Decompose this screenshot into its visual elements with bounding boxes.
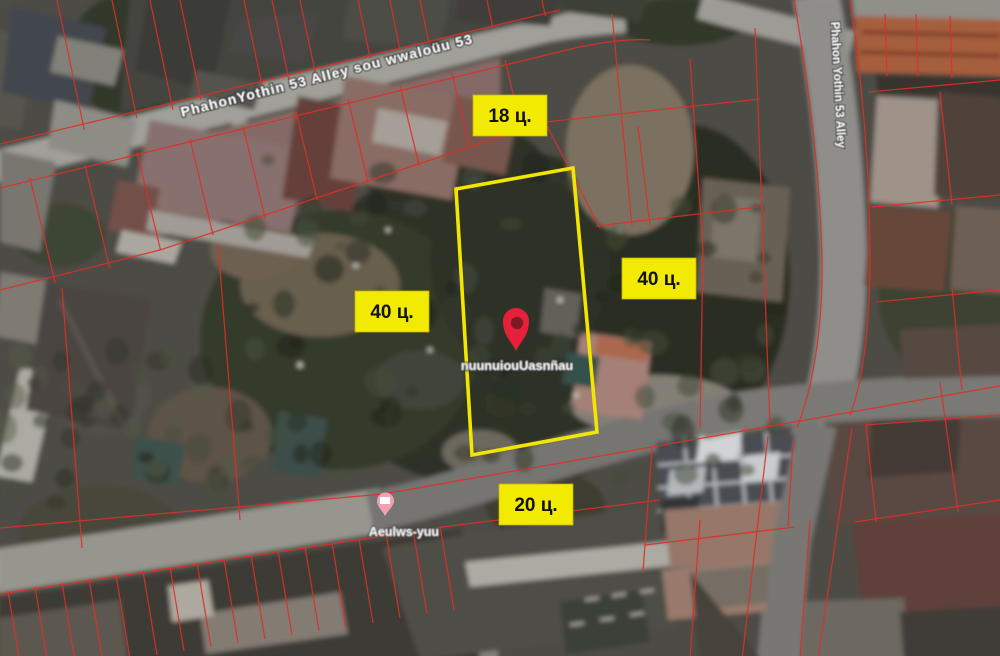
svg-text:nuunuiouUasnñau: nuunuiouUasnñau [461,358,573,373]
svg-text:Aeulws-yuu: Aeulws-yuu [369,525,439,539]
svg-text:40 ц.: 40 ц. [637,269,680,290]
svg-text:40 ц.: 40 ц. [370,302,413,323]
svg-text:20 ц.: 20 ц. [514,495,557,516]
svg-text:18 ц.: 18 ц. [488,106,531,127]
